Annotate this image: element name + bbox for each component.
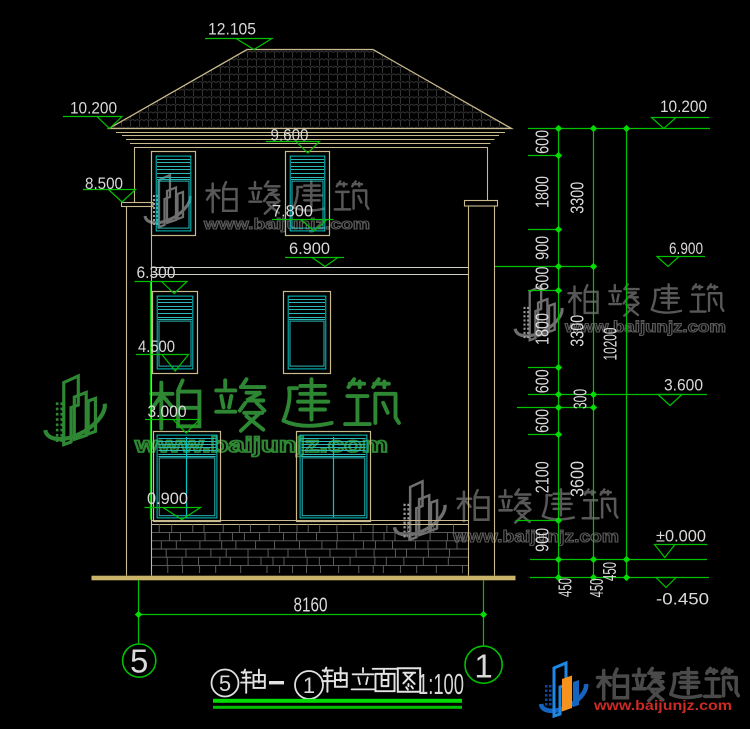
- svg-text:www.baijunjz.com: www.baijunjz.com: [593, 698, 732, 713]
- svg-text:10200: 10200: [601, 328, 621, 361]
- svg-text:-0.450: -0.450: [656, 590, 709, 609]
- svg-text:600: 600: [533, 369, 553, 393]
- svg-text:www.baijunjz.com: www.baijunjz.com: [134, 434, 388, 457]
- svg-text:5: 5: [219, 671, 231, 696]
- svg-text:600: 600: [533, 267, 553, 291]
- svg-text:600: 600: [533, 409, 553, 433]
- svg-text:900: 900: [533, 236, 553, 260]
- svg-text:3.000: 3.000: [148, 402, 187, 421]
- svg-text:3.600: 3.600: [664, 376, 703, 395]
- svg-text:1800: 1800: [533, 313, 553, 345]
- svg-text:3300: 3300: [568, 182, 588, 214]
- svg-text:8.500: 8.500: [85, 174, 123, 193]
- svg-text:5: 5: [130, 643, 148, 680]
- svg-text:12.105: 12.105: [208, 20, 256, 39]
- svg-text:7.800: 7.800: [272, 202, 313, 221]
- svg-text:0.900: 0.900: [147, 489, 188, 508]
- svg-text:6.900: 6.900: [289, 239, 330, 258]
- svg-text:2100: 2100: [533, 461, 553, 493]
- svg-text:10.200: 10.200: [70, 99, 117, 118]
- svg-text:3300: 3300: [568, 315, 588, 347]
- svg-text:1: 1: [303, 673, 315, 698]
- svg-text:600: 600: [533, 130, 553, 154]
- svg-text:10.200: 10.200: [660, 97, 707, 116]
- svg-text:±0.000: ±0.000: [656, 527, 706, 546]
- svg-text:1800: 1800: [533, 176, 553, 208]
- svg-text:www.baijunjz.com: www.baijunjz.com: [564, 319, 726, 336]
- svg-text:4.500: 4.500: [138, 337, 175, 356]
- svg-text:1:100: 1:100: [418, 669, 464, 701]
- svg-text:1: 1: [474, 648, 492, 685]
- svg-text:300: 300: [571, 389, 591, 409]
- svg-text:450: 450: [600, 562, 620, 581]
- svg-text:9.600: 9.600: [271, 126, 309, 145]
- svg-text:6.900: 6.900: [669, 239, 703, 258]
- svg-text:6.300: 6.300: [137, 263, 176, 282]
- svg-text:8160: 8160: [294, 595, 328, 617]
- svg-text:450: 450: [556, 578, 576, 597]
- svg-text:900: 900: [533, 528, 553, 552]
- svg-text:3600: 3600: [568, 461, 588, 497]
